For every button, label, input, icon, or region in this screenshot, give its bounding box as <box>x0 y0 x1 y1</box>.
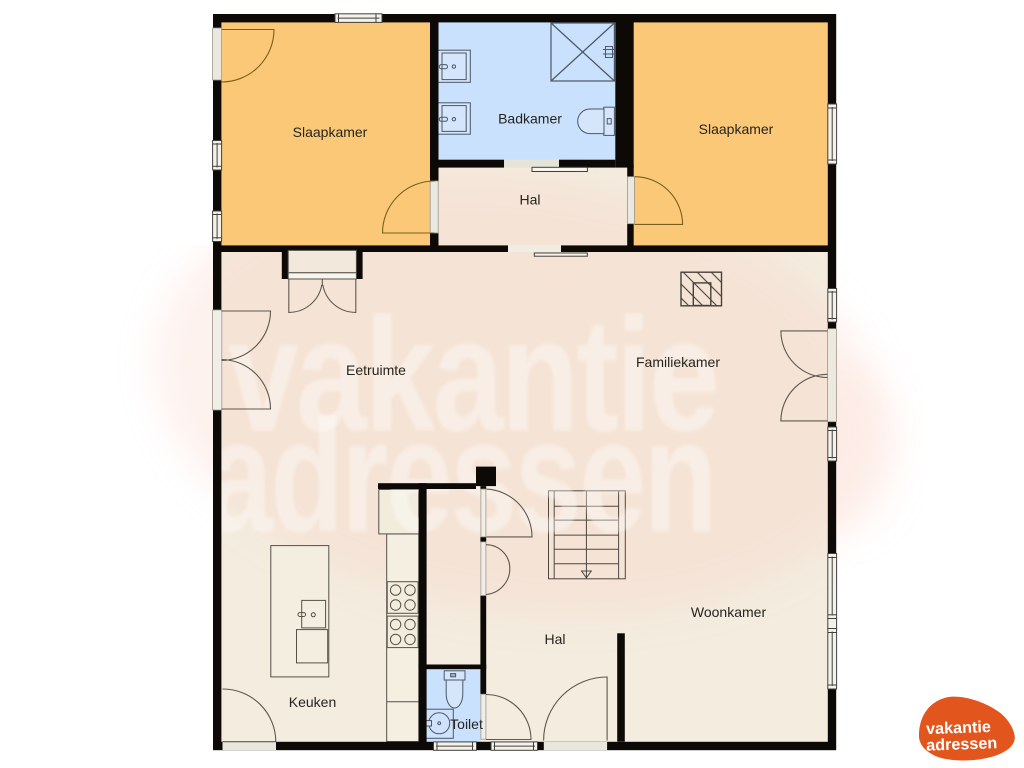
svg-text:adressen: adressen <box>206 386 715 565</box>
svg-text:Eetruimte: Eetruimte <box>346 362 406 378</box>
svg-text:Toilet: Toilet <box>450 716 483 732</box>
svg-text:Hal: Hal <box>544 631 565 647</box>
svg-text:Slaapkamer: Slaapkamer <box>699 121 774 137</box>
svg-text:Slaapkamer: Slaapkamer <box>293 124 368 140</box>
svg-text:Hal: Hal <box>519 192 540 208</box>
svg-text:Woonkamer: Woonkamer <box>691 604 767 620</box>
svg-text:Keuken: Keuken <box>289 694 336 710</box>
svg-text:Badkamer: Badkamer <box>498 111 562 127</box>
svg-text:adressen: adressen <box>926 734 998 754</box>
svg-text:Familiekamer: Familiekamer <box>636 354 720 370</box>
